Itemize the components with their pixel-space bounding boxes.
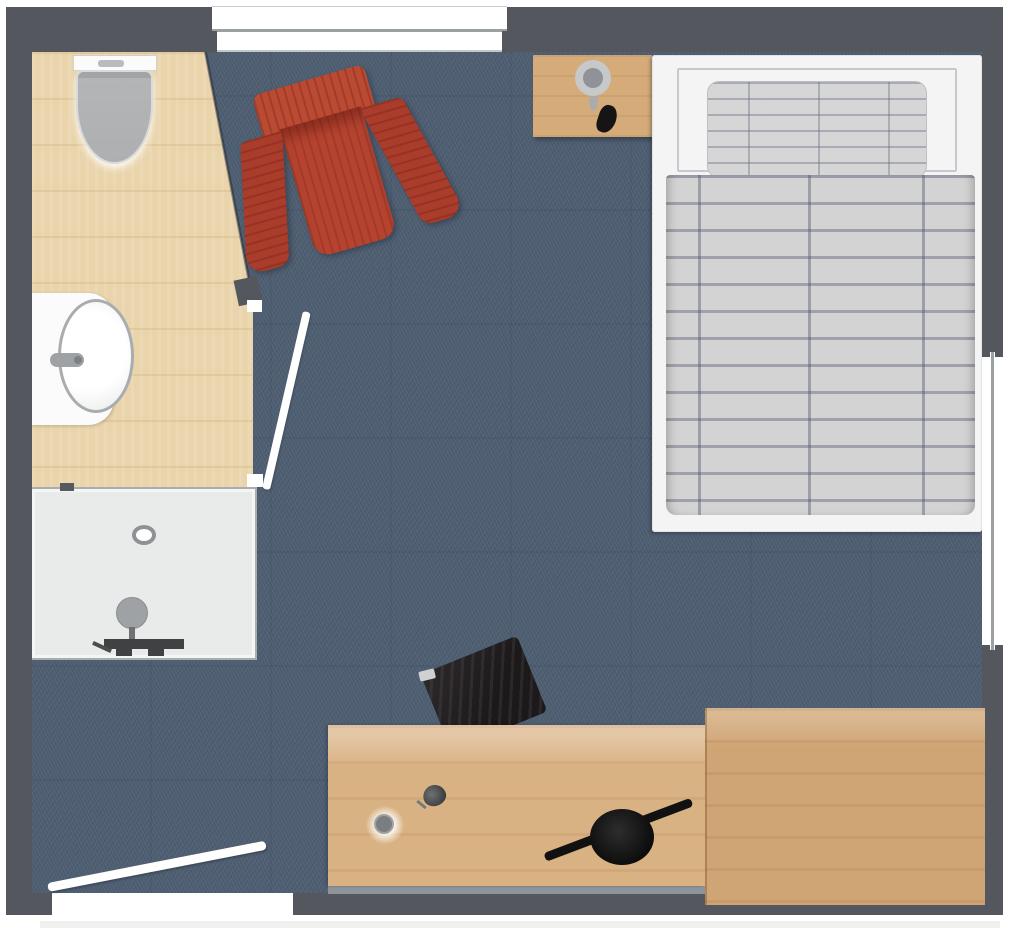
nightstand — [533, 55, 652, 137]
bedside-lamp-icon — [583, 68, 603, 88]
entry-door-jamb-right — [281, 893, 293, 915]
window-jamb — [995, 352, 1003, 357]
window-frame-line — [212, 50, 507, 52]
desk-chair-highlight — [418, 668, 436, 682]
toilet-tank — [73, 55, 157, 71]
shower-enclosure — [30, 487, 257, 660]
wall-top-right — [507, 7, 1003, 52]
window-frame-line — [991, 352, 994, 650]
toilet-flush-button — [98, 60, 124, 67]
sideboard — [705, 708, 985, 905]
window-right-wall — [982, 352, 1003, 650]
faucet-icon — [50, 353, 84, 367]
bathroom-door-jamb-bottom — [247, 474, 263, 487]
window-frame-line — [212, 29, 507, 32]
bedside-lamp-stem — [589, 96, 598, 111]
shower-mixer-valve-right — [148, 649, 164, 656]
wall-right-upper — [982, 7, 1003, 352]
bedside-dark-object — [594, 103, 620, 135]
floor-plan-canvas — [0, 0, 1024, 935]
window-jamb — [502, 31, 507, 53]
bathroom-door-jamb-top — [247, 300, 262, 312]
tv-stand-icon — [590, 809, 654, 865]
shower-mixer-valve-left — [116, 649, 132, 656]
window-jamb — [982, 645, 990, 650]
entry-door-jamb-left — [52, 893, 64, 915]
duvet-seam-line — [922, 175, 925, 515]
bed-pillow — [707, 81, 927, 178]
shower-door-hinge — [60, 483, 74, 491]
wall-top-left — [6, 7, 212, 52]
window-top-wall — [212, 6, 507, 52]
single-bed — [652, 55, 982, 532]
duvet-seam-line — [808, 175, 811, 515]
duvet-seam-line — [698, 175, 701, 515]
window-jamb — [212, 31, 217, 53]
desk-shadow — [328, 886, 705, 894]
shower-mixer-icon — [116, 597, 148, 629]
bed-duvet — [666, 175, 975, 515]
wall-right-lower — [982, 650, 1003, 915]
desk-lamp-icon — [374, 814, 394, 834]
window-jamb — [982, 352, 990, 357]
shower-drain-icon — [132, 525, 156, 545]
window-jamb — [995, 645, 1003, 650]
scan-artifact — [40, 921, 1000, 928]
armchair-left-arm — [240, 131, 289, 276]
wall-left — [6, 7, 32, 915]
shower-mixer-bar — [104, 639, 184, 649]
